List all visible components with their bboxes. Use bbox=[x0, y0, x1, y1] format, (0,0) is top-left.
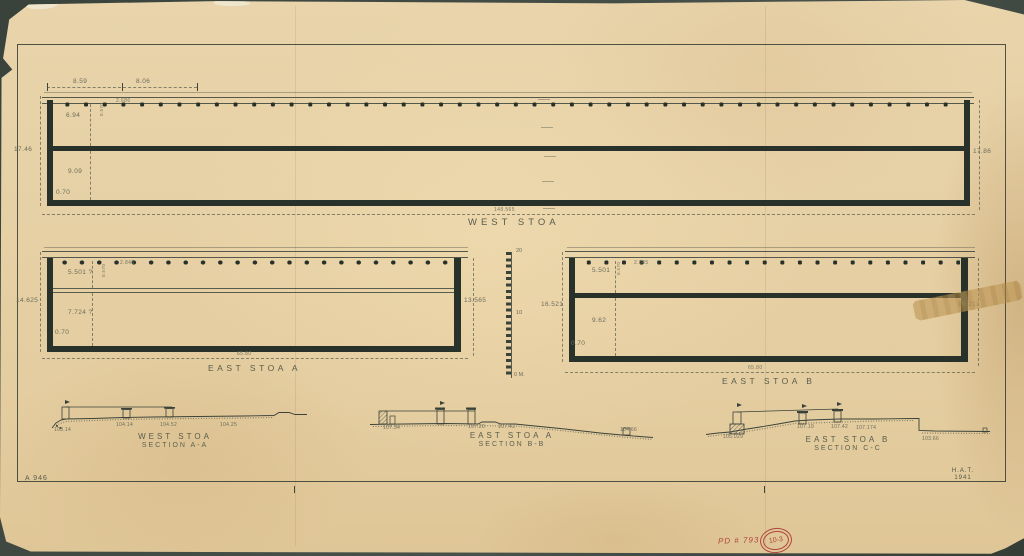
dim-tick bbox=[197, 83, 198, 91]
dim-col-width: 0.570 bbox=[99, 103, 104, 116]
dim-length: 148.565 bbox=[494, 207, 515, 213]
credit-abbreviation: H.A.T. bbox=[948, 468, 978, 474]
elevation-label: 107.34 bbox=[383, 425, 400, 431]
catalog-stamp: 10-3 bbox=[758, 526, 793, 555]
east-a-wall-back bbox=[47, 346, 461, 352]
west-wall-right bbox=[964, 100, 970, 206]
dim-wall: 0.70 bbox=[55, 329, 69, 336]
pier bbox=[123, 410, 130, 419]
stylobate-lines bbox=[565, 251, 975, 258]
dim-right-width: 13.565 bbox=[464, 297, 486, 304]
epistyle-line bbox=[737, 409, 838, 412]
length-dim-line bbox=[565, 372, 975, 373]
step-line bbox=[44, 247, 468, 248]
dim-room: 7.724 ? bbox=[68, 309, 93, 316]
torn-paper-bit bbox=[214, 0, 250, 6]
elevation-label: 107.19 bbox=[797, 424, 814, 430]
section-aa-drawing bbox=[48, 398, 313, 458]
flag-marker bbox=[440, 401, 445, 408]
dim-tick bbox=[47, 83, 48, 91]
elevation-label: 104.52 bbox=[160, 422, 177, 428]
section-bb-title: EAST STOA A bbox=[442, 431, 582, 440]
elevation-label: 107.20 bbox=[468, 424, 485, 430]
section-aa-subtitle: SECTION A-A bbox=[105, 442, 245, 449]
west-stoa-title: WEST STOA bbox=[468, 217, 560, 228]
dim-room: 9.62 bbox=[592, 317, 606, 324]
dim-porch: 5.501 ? bbox=[68, 269, 93, 276]
scale-bottom-label: 0 M. bbox=[514, 372, 525, 378]
dim-col-spacing: 2.845 bbox=[120, 260, 135, 266]
dim-tick bbox=[122, 83, 123, 91]
dim-wall: 0.70 bbox=[571, 340, 585, 347]
drawing-sheet: 8.59 8.06 2.686 0.570 6.94 9.09 0.70 17.… bbox=[0, 0, 1024, 556]
east-b-wall-back bbox=[569, 356, 968, 362]
section-cc-subtitle: SECTION C-C bbox=[778, 445, 918, 452]
east-a-mid-line bbox=[53, 292, 457, 293]
credit-year: 1941 bbox=[948, 475, 978, 481]
dim-wall: 0.70 bbox=[56, 189, 70, 196]
section-aa-title: WEST STOA bbox=[105, 432, 245, 441]
porch-dim-line bbox=[615, 261, 616, 293]
sheet-number: A 946 bbox=[25, 475, 48, 482]
match-mark bbox=[541, 127, 553, 128]
porch-dim-line bbox=[92, 261, 93, 288]
length-dim-line bbox=[42, 358, 468, 359]
dim-room: 9.09 bbox=[68, 168, 82, 175]
pier bbox=[379, 411, 387, 424]
dim-left-width: 16.521 bbox=[541, 301, 563, 308]
section-cc-title: EAST STOA B bbox=[778, 435, 918, 444]
dim-length: 65.80 bbox=[748, 365, 763, 371]
dim-length: 65.80 bbox=[237, 351, 252, 357]
dim-col-spacing: 2.686 bbox=[116, 98, 131, 104]
dim-bay2: 8.06 bbox=[136, 78, 150, 85]
torn-paper-bit bbox=[26, 0, 59, 10]
match-mark bbox=[543, 208, 555, 209]
right-width-dim-line bbox=[473, 258, 474, 356]
porch-dim-line bbox=[90, 104, 91, 146]
flag-marker bbox=[837, 402, 842, 409]
dim-right-width: 17.86 bbox=[973, 148, 991, 155]
west-wall-left bbox=[47, 100, 53, 206]
elevation-label: 105.029 bbox=[723, 434, 743, 440]
east-a-wall-right bbox=[454, 258, 461, 352]
match-mark bbox=[544, 156, 556, 157]
pier bbox=[437, 410, 444, 425]
fold-tick bbox=[294, 486, 295, 493]
dim-porch: 6.94 bbox=[66, 112, 80, 119]
elevation-label: 103.66 bbox=[922, 436, 939, 442]
pier bbox=[62, 407, 69, 419]
pier bbox=[733, 412, 741, 424]
elevation-label: 104.25 bbox=[220, 422, 237, 428]
ground-profile bbox=[52, 413, 307, 429]
pier bbox=[390, 416, 395, 424]
flag-marker bbox=[737, 403, 742, 412]
length-dim-line bbox=[42, 214, 975, 215]
scale-mid-label: 10 bbox=[516, 310, 522, 316]
column-row bbox=[56, 259, 452, 266]
pier-foundation bbox=[730, 424, 744, 434]
room-dim-line bbox=[615, 298, 616, 356]
elevation-label: 104.66 bbox=[620, 427, 637, 433]
room-dim-line bbox=[90, 151, 91, 200]
east-a-wall-left bbox=[47, 258, 53, 352]
east-a-mid-line bbox=[53, 288, 457, 289]
elevation-label: 104.14 bbox=[116, 422, 133, 428]
east-stoa-b-title: EAST STOA B bbox=[722, 376, 815, 386]
right-width-dim-line bbox=[978, 258, 979, 366]
dim-bay1: 8.59 bbox=[73, 78, 87, 85]
fold-tick bbox=[764, 486, 765, 493]
left-width-dim-line bbox=[40, 252, 41, 352]
catalog-stamp-number: 10-3 bbox=[762, 529, 790, 551]
pier bbox=[468, 410, 475, 425]
pier bbox=[166, 409, 173, 418]
elevation-label: 107.174 bbox=[856, 425, 876, 431]
step-line bbox=[567, 247, 975, 248]
flag-marker bbox=[65, 400, 70, 407]
elevation-label: 103.14 bbox=[54, 427, 71, 433]
east-stoa-a-title: EAST STOA A bbox=[208, 363, 301, 373]
left-width-dim-line bbox=[40, 96, 41, 206]
dim-left-width: 17.46 bbox=[14, 146, 32, 153]
dim-col-spacing: 2.845 bbox=[634, 260, 649, 266]
right-width-dim-line bbox=[979, 100, 980, 210]
scale-top-label: 20 bbox=[516, 248, 522, 254]
pd-number-note: PD # 793 bbox=[718, 535, 760, 545]
section-cc-drawing bbox=[700, 396, 992, 466]
scale-bar-line bbox=[511, 252, 512, 378]
pier bbox=[834, 411, 841, 422]
step-line bbox=[44, 92, 972, 93]
pier bbox=[799, 413, 806, 424]
dim-left-width: 14.625 bbox=[16, 297, 38, 304]
elevation-label: 107.42 bbox=[831, 424, 848, 430]
dim-porch: 5.501 bbox=[592, 267, 610, 274]
match-mark bbox=[542, 181, 554, 182]
stylobate-lines bbox=[42, 251, 468, 258]
section-bb-subtitle: SECTION B-B bbox=[442, 441, 582, 448]
photo-backdrop: 8.59 8.06 2.686 0.570 6.94 9.09 0.70 17.… bbox=[0, 0, 1024, 556]
dim-col-width: 0.570 bbox=[616, 262, 621, 275]
column-row bbox=[58, 101, 958, 108]
elevation-label: 107.43 bbox=[498, 424, 515, 430]
match-mark bbox=[538, 99, 550, 100]
room-dim-line bbox=[92, 293, 93, 346]
west-wall-back bbox=[47, 200, 970, 206]
dim-col-width: 0.570 bbox=[101, 264, 106, 277]
west-wall-mid bbox=[53, 146, 964, 151]
east-b-wall-mid bbox=[575, 293, 962, 298]
